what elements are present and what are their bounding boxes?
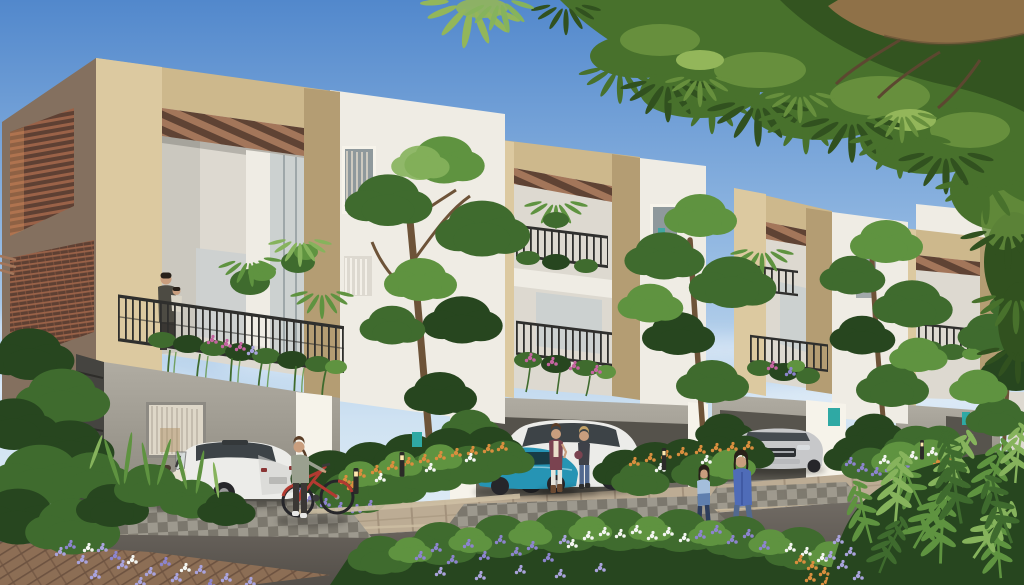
garden-sign bbox=[412, 432, 422, 447]
townhouse-2-frame-right-pillar bbox=[612, 154, 640, 400]
townhouse-1-wing-window-lower bbox=[344, 256, 372, 296]
townhouse-3-plaque bbox=[828, 408, 840, 426]
townhouse-1-louver-sunlit-edge bbox=[10, 127, 24, 236]
townhouse-render bbox=[0, 0, 1024, 585]
render-canvas bbox=[0, 0, 1024, 585]
